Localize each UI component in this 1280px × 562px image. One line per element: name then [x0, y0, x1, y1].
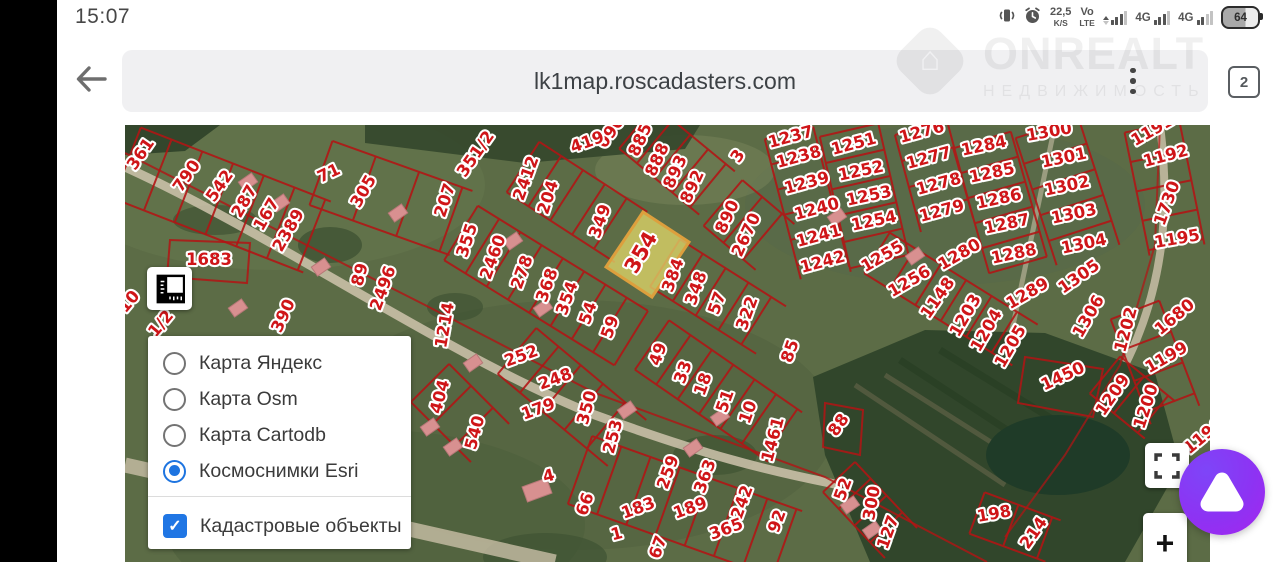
- radio-icon: [163, 460, 186, 483]
- radio-icon: [163, 352, 186, 375]
- measure-tool-button[interactable]: [147, 267, 192, 310]
- browser-toolbar: lk1map.roscadasters.com 2: [57, 35, 1280, 118]
- signal-bars-volte: [1103, 10, 1128, 25]
- alarm-clock-icon: [1023, 6, 1042, 30]
- tab-counter-button[interactable]: 2: [1228, 66, 1260, 98]
- parcel-number[interactable]: 1683: [186, 250, 232, 269]
- map-layers-panel: Карта Яндекс Карта Osm Карта Cartodb Кос…: [148, 336, 411, 549]
- layer-option-cartodb[interactable]: Карта Cartodb: [148, 417, 411, 453]
- data-speed-indicator: 22,5 K/S: [1050, 7, 1071, 28]
- browser-menu-button[interactable]: [1118, 53, 1148, 109]
- url-text: lk1map.roscadasters.com: [534, 68, 796, 95]
- cadastral-objects-toggle[interactable]: ✓ Кадастровые объекты: [148, 508, 411, 544]
- zoom-in-button[interactable]: +: [1143, 513, 1187, 562]
- data-arrows-icon: [1103, 16, 1109, 25]
- fullscreen-icon: [1154, 453, 1180, 479]
- signal-4g-primary: 4G: [1135, 10, 1170, 25]
- address-bar[interactable]: lk1map.roscadasters.com: [122, 50, 1208, 112]
- radio-icon: [163, 424, 186, 447]
- signal-4g-secondary: 4G: [1178, 10, 1213, 25]
- layer-option-esri[interactable]: Космоснимки Esri: [148, 453, 411, 489]
- status-time: 15:07: [75, 5, 130, 29]
- pond: [986, 415, 1130, 495]
- assistant-button[interactable]: [1179, 449, 1265, 535]
- vibrate-icon: [999, 6, 1015, 30]
- alice-triangle-icon: [1196, 468, 1248, 516]
- status-icons: 22,5 K/S Vo LTE 4G 4G 64: [999, 2, 1260, 33]
- letterbox-strip: [0, 0, 57, 562]
- volte-indicator: Vo LTE: [1079, 7, 1094, 28]
- back-button[interactable]: [69, 59, 113, 99]
- cadastral-map[interactable]: 361790542287167238971305351/220724122041…: [125, 125, 1210, 562]
- status-bar: 15:07 22,5 K/S Vo LTE 4G: [57, 0, 1280, 35]
- radio-icon: [163, 388, 186, 411]
- ruler-icon: [155, 274, 185, 304]
- battery-indicator: 64: [1221, 6, 1260, 29]
- panel-divider: [148, 496, 411, 497]
- checkbox-icon: ✓: [163, 514, 187, 538]
- layer-option-yandex[interactable]: Карта Яндекс: [148, 345, 411, 381]
- android-browser-screen: 15:07 22,5 K/S Vo LTE 4G: [0, 0, 1280, 562]
- layer-option-osm[interactable]: Карта Osm: [148, 381, 411, 417]
